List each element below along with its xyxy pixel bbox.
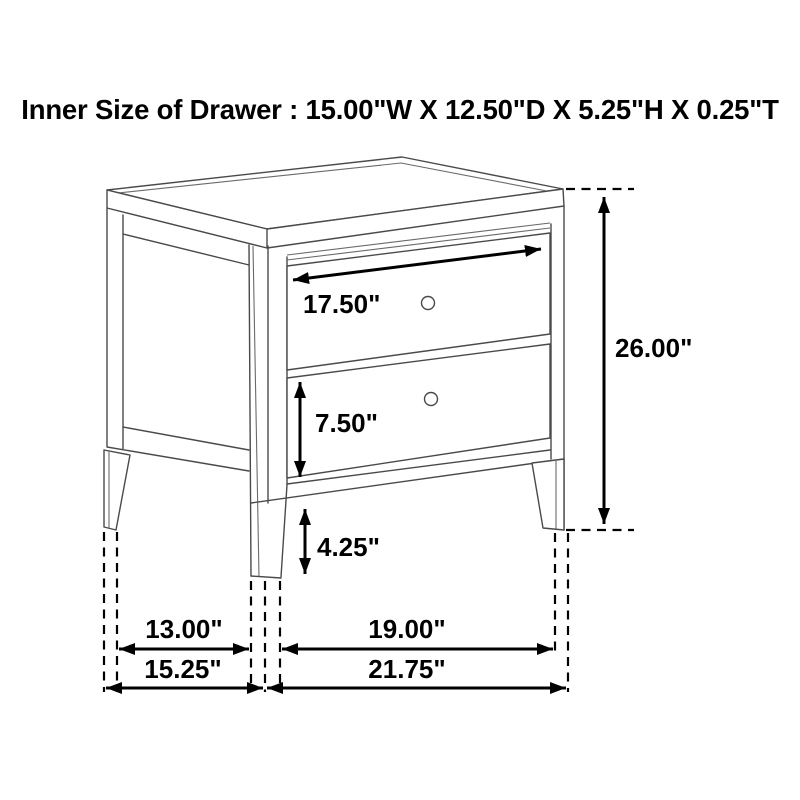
label-front-overall-width: 21.75" bbox=[368, 654, 445, 684]
front-right-leg bbox=[532, 459, 564, 530]
label-drawer-front-height: 7.50" bbox=[315, 408, 378, 438]
label-side-inner-depth: 13.00" bbox=[145, 614, 222, 644]
side-panel-bottom-rail-line bbox=[123, 427, 249, 450]
rear-left-leg bbox=[104, 450, 130, 530]
front-left-leg-bottom-edge bbox=[251, 576, 281, 578]
label-overall-height: 26.00" bbox=[615, 333, 692, 363]
front-corner-edge bbox=[249, 245, 251, 576]
nightstand-dimension-drawing: Inner Size of Drawer : 15.00"W X 12.50"D… bbox=[0, 0, 800, 800]
label-front-inner-width: 19.00" bbox=[368, 614, 445, 644]
nightstand-drawing bbox=[104, 157, 564, 578]
label-side-overall-depth: 15.25" bbox=[144, 654, 221, 684]
front-corner-inner-line bbox=[253, 246, 259, 577]
diagram-title: Inner Size of Drawer : 15.00"W X 12.50"D… bbox=[21, 94, 779, 125]
label-leg-clearance-height: 4.25" bbox=[317, 532, 380, 562]
drawer-opening-left-edge bbox=[281, 257, 287, 577]
label-drawer-front-width: 17.50" bbox=[303, 289, 380, 319]
dimension-diagram: Inner Size of Drawer : 15.00"W X 12.50"D… bbox=[0, 0, 800, 800]
